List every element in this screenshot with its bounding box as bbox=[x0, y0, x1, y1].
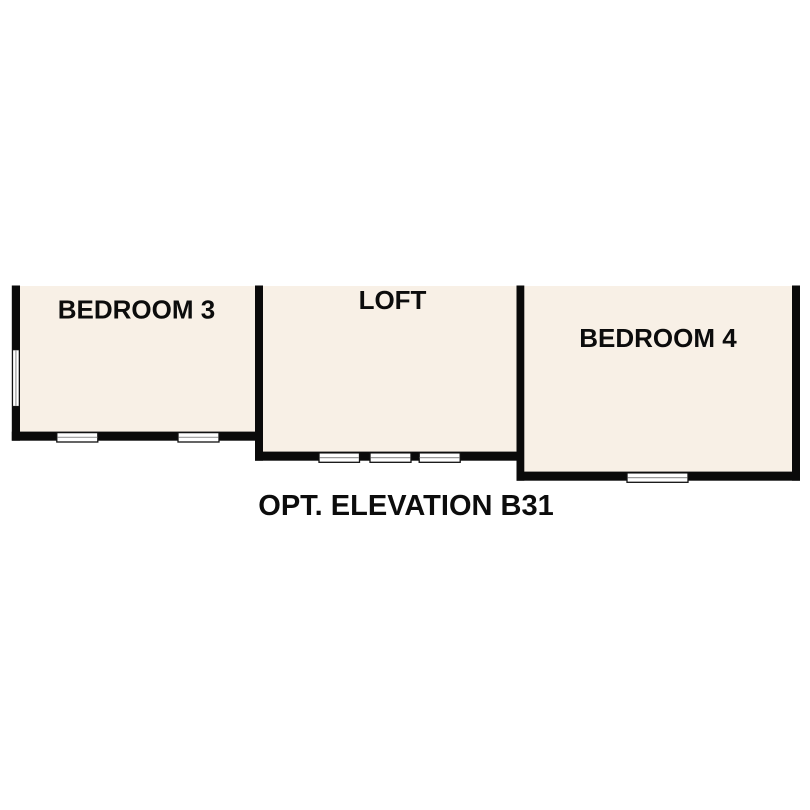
svg-text:OPT. ELEVATION B31: OPT. ELEVATION B31 bbox=[258, 490, 553, 522]
svg-text:LOFT: LOFT bbox=[359, 285, 427, 315]
svg-text:BEDROOM 3: BEDROOM 3 bbox=[58, 295, 215, 325]
svg-text:BEDROOM 4: BEDROOM 4 bbox=[579, 323, 737, 353]
